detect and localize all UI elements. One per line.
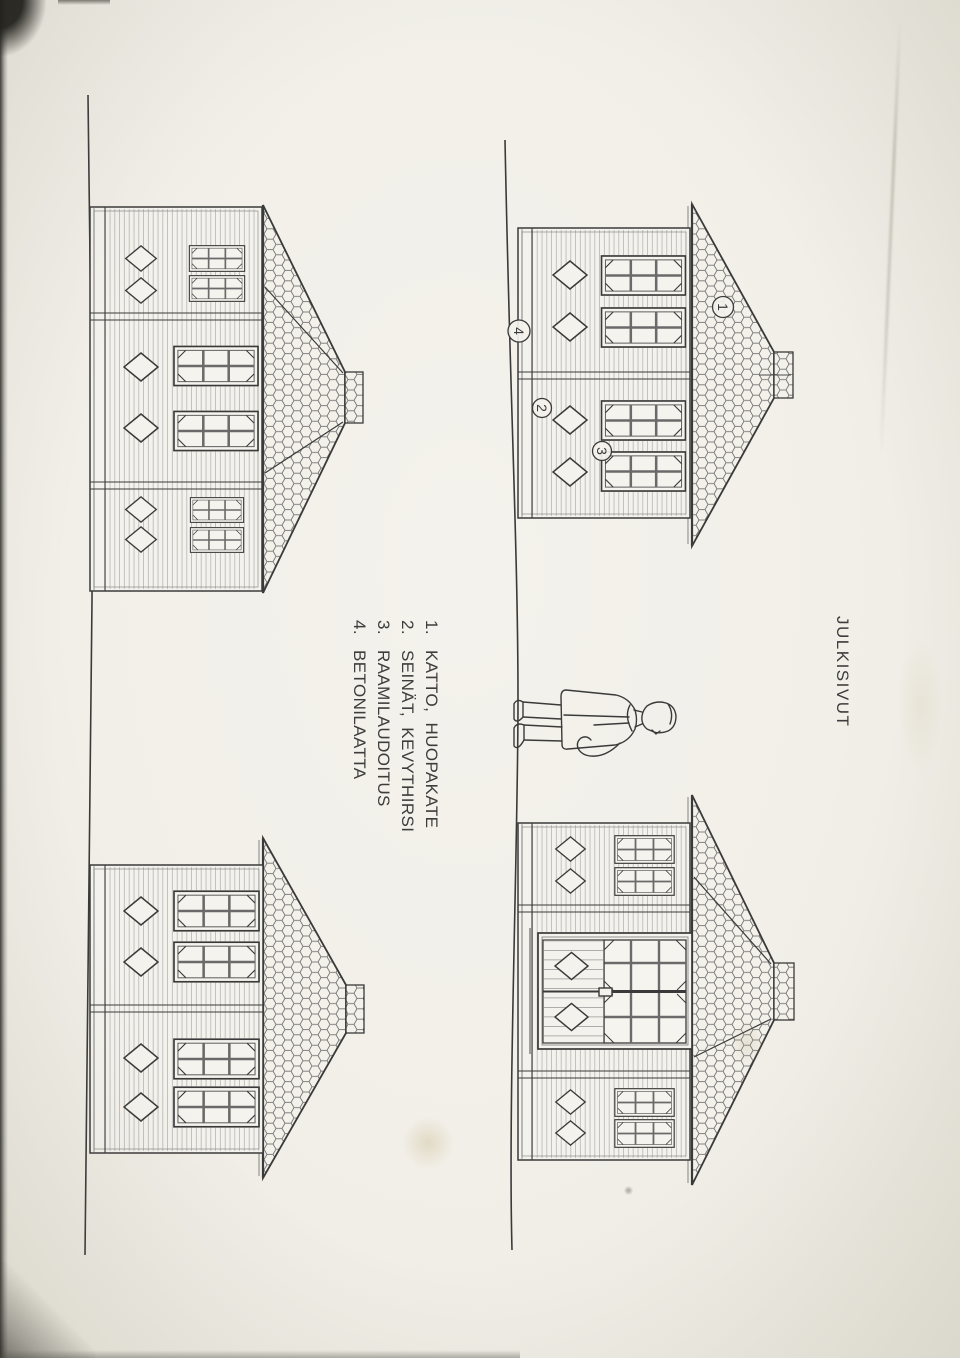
window <box>173 1038 260 1080</box>
marker-roof: 1 <box>713 297 734 318</box>
chimney <box>346 985 364 1033</box>
window <box>614 867 675 896</box>
paper-stain <box>402 1116 454 1170</box>
scan-edge-shadow <box>0 0 8 1358</box>
legend-item: 2. SEINÄT, KEVYTHIRSI <box>395 620 419 832</box>
window <box>173 410 259 451</box>
scan-corner-mark <box>0 0 46 56</box>
ground-line-upper <box>505 140 518 1250</box>
roof-hip-shingles <box>263 838 346 1178</box>
chimney <box>774 963 794 1020</box>
legend-item: 1. KATTO, HUOPAKATE <box>419 620 443 832</box>
drawing-canvas: 1 2 3 4 JULKISIVUT 1. KATTO, <box>0 0 960 1358</box>
window <box>173 890 260 932</box>
window <box>614 835 675 864</box>
legend-item-number: 4. <box>347 620 371 650</box>
entrance-door <box>530 928 692 1054</box>
marker-wall: 2 <box>533 399 552 418</box>
window <box>190 527 244 553</box>
window <box>173 345 259 386</box>
legend-item-label: KATTO, HUOPAKATE <box>419 650 443 828</box>
window <box>614 1119 675 1148</box>
roof-hip-shingles <box>692 795 774 1185</box>
door-handle <box>599 988 612 996</box>
roof-hip-shingles <box>263 205 345 593</box>
legend-item-number: 1. <box>419 620 443 650</box>
chimney <box>345 372 363 423</box>
house-elevation-end-right <box>90 838 364 1178</box>
house-elevation-side <box>90 205 363 593</box>
legend-item-label: RAAMILAUDOITUS <box>371 650 395 807</box>
window <box>173 941 260 983</box>
window <box>614 1088 675 1117</box>
window <box>173 1086 260 1128</box>
window <box>601 400 687 441</box>
svg-text:1: 1 <box>715 303 731 311</box>
house-elevation-entrance <box>518 795 794 1185</box>
paper-stain <box>730 1020 764 1066</box>
paper-speck <box>624 1186 633 1195</box>
scan-edge-shadow-bottom <box>0 1350 520 1358</box>
house-elevation-end-left <box>518 204 793 546</box>
drawing-title: JULKISIVUT <box>832 616 852 756</box>
window <box>189 275 246 302</box>
page-curl-shadow <box>0 1262 95 1358</box>
legend-item: 3. RAAMILAUDOITUS <box>371 620 395 832</box>
scanned-drawing-page: 1 2 3 4 JULKISIVUT 1. KATTO, <box>0 0 960 1358</box>
legend-item-number: 2. <box>395 620 419 650</box>
window <box>189 245 246 272</box>
window <box>190 497 244 523</box>
legend-item-number: 3. <box>371 620 395 650</box>
marker-window-trim: 3 <box>593 442 612 461</box>
svg-text:3: 3 <box>594 447 610 455</box>
legend-item-label: SEINÄT, KEVYTHIRSI <box>395 650 419 832</box>
legend-item-label: BETONILAATTA <box>347 650 371 780</box>
person-scale-figure <box>514 690 676 756</box>
window <box>601 307 687 348</box>
window <box>601 451 687 492</box>
svg-text:2: 2 <box>534 404 550 412</box>
svg-text:4: 4 <box>511 327 527 335</box>
scan-edge-mark <box>58 0 110 5</box>
window <box>601 255 687 296</box>
marker-foundation: 4 <box>508 320 530 342</box>
elevations-drawing: 1 2 3 4 <box>0 0 960 1358</box>
paper-stain <box>898 640 942 770</box>
legend-item: 4. BETONILAATTA <box>347 620 371 832</box>
materials-legend: 1. KATTO, HUOPAKATE 2. SEINÄT, KEVYTHIRS… <box>347 620 443 832</box>
